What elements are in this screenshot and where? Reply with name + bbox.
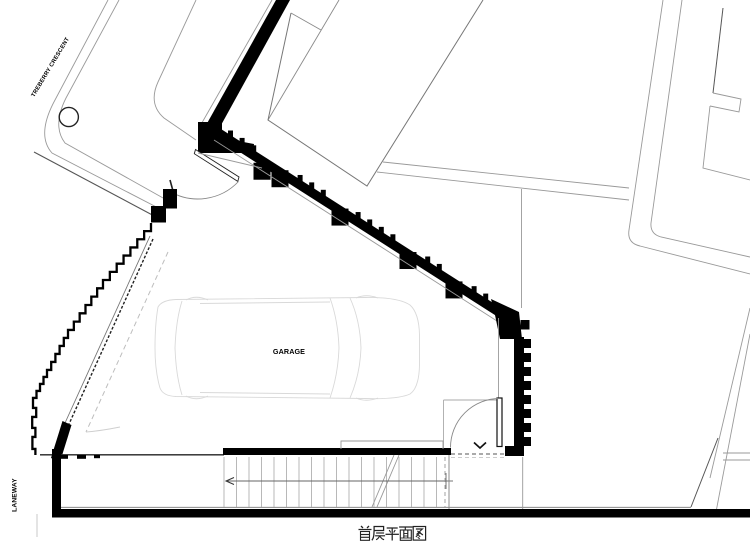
svg-text:TREBERRY CRESCENT: TREBERRY CRESCENT — [31, 36, 72, 98]
svg-text:GARAGE: GARAGE — [273, 347, 305, 356]
svg-text:LANEWAY: LANEWAY — [12, 478, 19, 512]
